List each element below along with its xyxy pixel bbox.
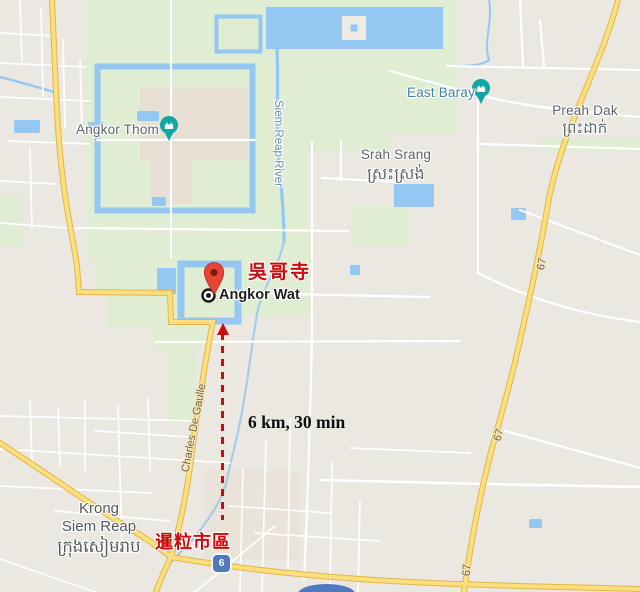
label-angkor-wat: Angkor Wat <box>219 287 300 303</box>
label-srah-srang-khmer: ស្រះស្រង់ <box>348 163 444 187</box>
road-6-south <box>156 557 171 592</box>
annotation-distance-time: 6 km, 30 min <box>248 412 345 433</box>
label-east-baray: East Baray <box>407 85 475 100</box>
neak-pean-island <box>342 16 366 40</box>
label-srah-srang: Srah Srang <box>350 147 442 162</box>
label-krong-line1: Krong <box>43 500 155 517</box>
label-preah-dak: Preah Dak <box>545 103 625 118</box>
label-krong-khmer: ក្រុងសៀមរាប <box>35 537 163 561</box>
annotation-angkor-wat-chinese: 吳哥寺 <box>248 257 311 284</box>
label-route-67-c: 67 <box>461 563 474 576</box>
label-krong-line2: Siem Reap <box>43 518 155 535</box>
annotation-siem-reap-chinese: 暹粒市區 <box>155 528 231 554</box>
label-route-67-a: 67 <box>535 257 549 271</box>
route-6-shield[interactable]: 6 <box>213 555 230 572</box>
label-preah-dak-khmer: ព្រះដាក់ <box>541 119 629 141</box>
map-viewport[interactable]: Angkor Thom East Baray Preah Dak ព្រះដាក… <box>0 0 640 592</box>
label-angkor-thom: Angkor Thom <box>76 122 159 137</box>
route-arrow-dashed-line <box>221 333 224 520</box>
angkor-thom-pin[interactable] <box>158 114 180 142</box>
label-siem-reap-river: Siem Reap River <box>272 100 284 187</box>
